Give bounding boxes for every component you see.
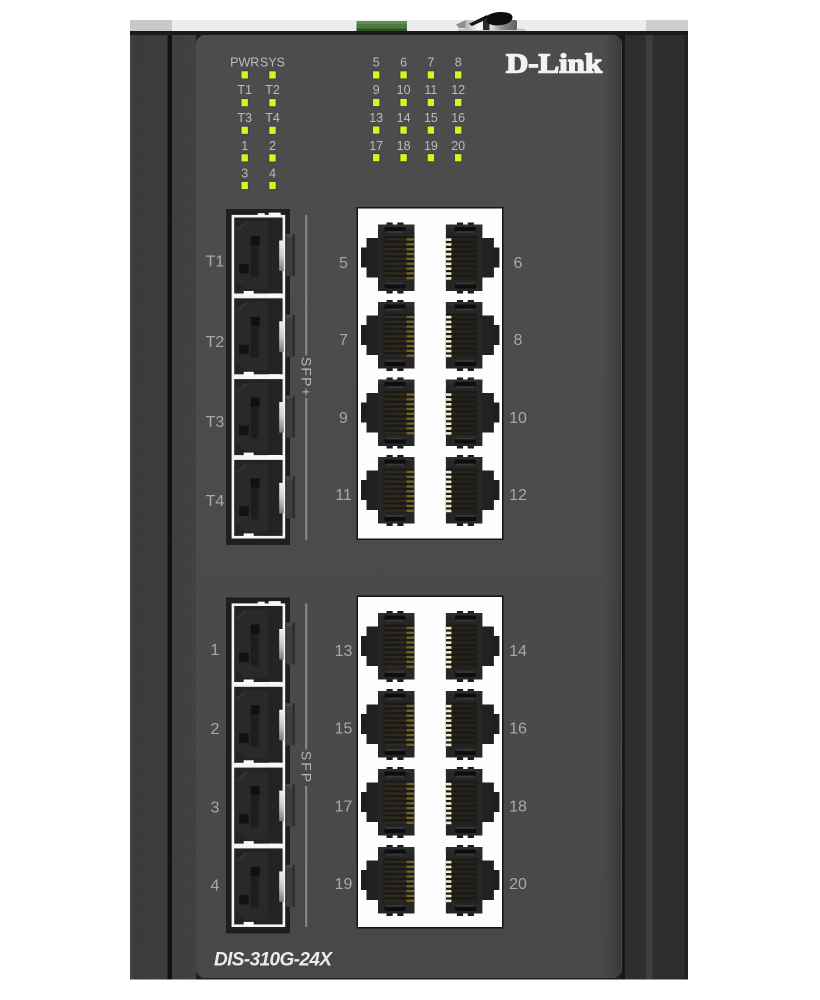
svg-text:16: 16 <box>451 111 465 125</box>
svg-text:16: 16 <box>509 721 527 738</box>
svg-text:4: 4 <box>211 878 220 895</box>
svg-text:18: 18 <box>509 799 527 816</box>
svg-text:T2: T2 <box>206 334 225 351</box>
svg-text:T4: T4 <box>265 111 280 125</box>
svg-text:19: 19 <box>335 876 353 893</box>
svg-text:8: 8 <box>514 332 523 349</box>
svg-text:5: 5 <box>373 56 380 70</box>
svg-text:20: 20 <box>451 139 465 153</box>
svg-text:SFP+: SFP+ <box>299 357 315 397</box>
svg-text:11: 11 <box>335 487 352 504</box>
svg-text:14: 14 <box>509 643 527 660</box>
svg-text:1: 1 <box>211 642 220 659</box>
svg-text:7: 7 <box>339 332 348 349</box>
svg-text:T4: T4 <box>206 493 225 510</box>
svg-text:18: 18 <box>397 139 411 153</box>
svg-text:13: 13 <box>369 111 383 125</box>
svg-text:17: 17 <box>335 799 353 816</box>
svg-text:T2: T2 <box>265 83 280 97</box>
svg-text:10: 10 <box>397 83 411 97</box>
svg-text:12: 12 <box>451 83 465 97</box>
svg-text:PWR: PWR <box>230 56 259 70</box>
svg-text:4: 4 <box>269 166 276 180</box>
svg-text:SYS: SYS <box>260 56 285 70</box>
svg-text:3: 3 <box>211 800 220 817</box>
svg-text:9: 9 <box>373 83 380 97</box>
svg-text:19: 19 <box>424 139 438 153</box>
svg-text:9: 9 <box>339 410 348 427</box>
svg-text:D-Link: D-Link <box>506 49 602 79</box>
svg-text:10: 10 <box>509 410 527 427</box>
svg-text:DIS-310G-24X: DIS-310G-24X <box>214 950 333 971</box>
svg-text:SFP: SFP <box>299 751 315 784</box>
svg-text:14: 14 <box>397 111 411 125</box>
svg-text:15: 15 <box>335 721 353 738</box>
svg-text:15: 15 <box>424 111 438 125</box>
svg-text:8: 8 <box>455 56 462 70</box>
svg-text:13: 13 <box>335 643 353 660</box>
svg-text:2: 2 <box>269 139 276 153</box>
svg-text:T3: T3 <box>206 414 225 431</box>
svg-text:7: 7 <box>427 56 434 70</box>
svg-text:5: 5 <box>339 255 348 272</box>
svg-text:T3: T3 <box>237 111 252 125</box>
svg-text:11: 11 <box>424 83 437 97</box>
svg-text:3: 3 <box>241 166 248 180</box>
svg-text:20: 20 <box>509 876 527 893</box>
svg-text:2: 2 <box>211 721 220 738</box>
svg-text:T1: T1 <box>237 83 252 97</box>
svg-text:12: 12 <box>509 487 527 504</box>
svg-text:1: 1 <box>241 139 248 153</box>
svg-text:T1: T1 <box>206 254 225 271</box>
svg-text:17: 17 <box>369 139 383 153</box>
svg-text:6: 6 <box>514 255 523 272</box>
svg-text:6: 6 <box>400 56 407 70</box>
